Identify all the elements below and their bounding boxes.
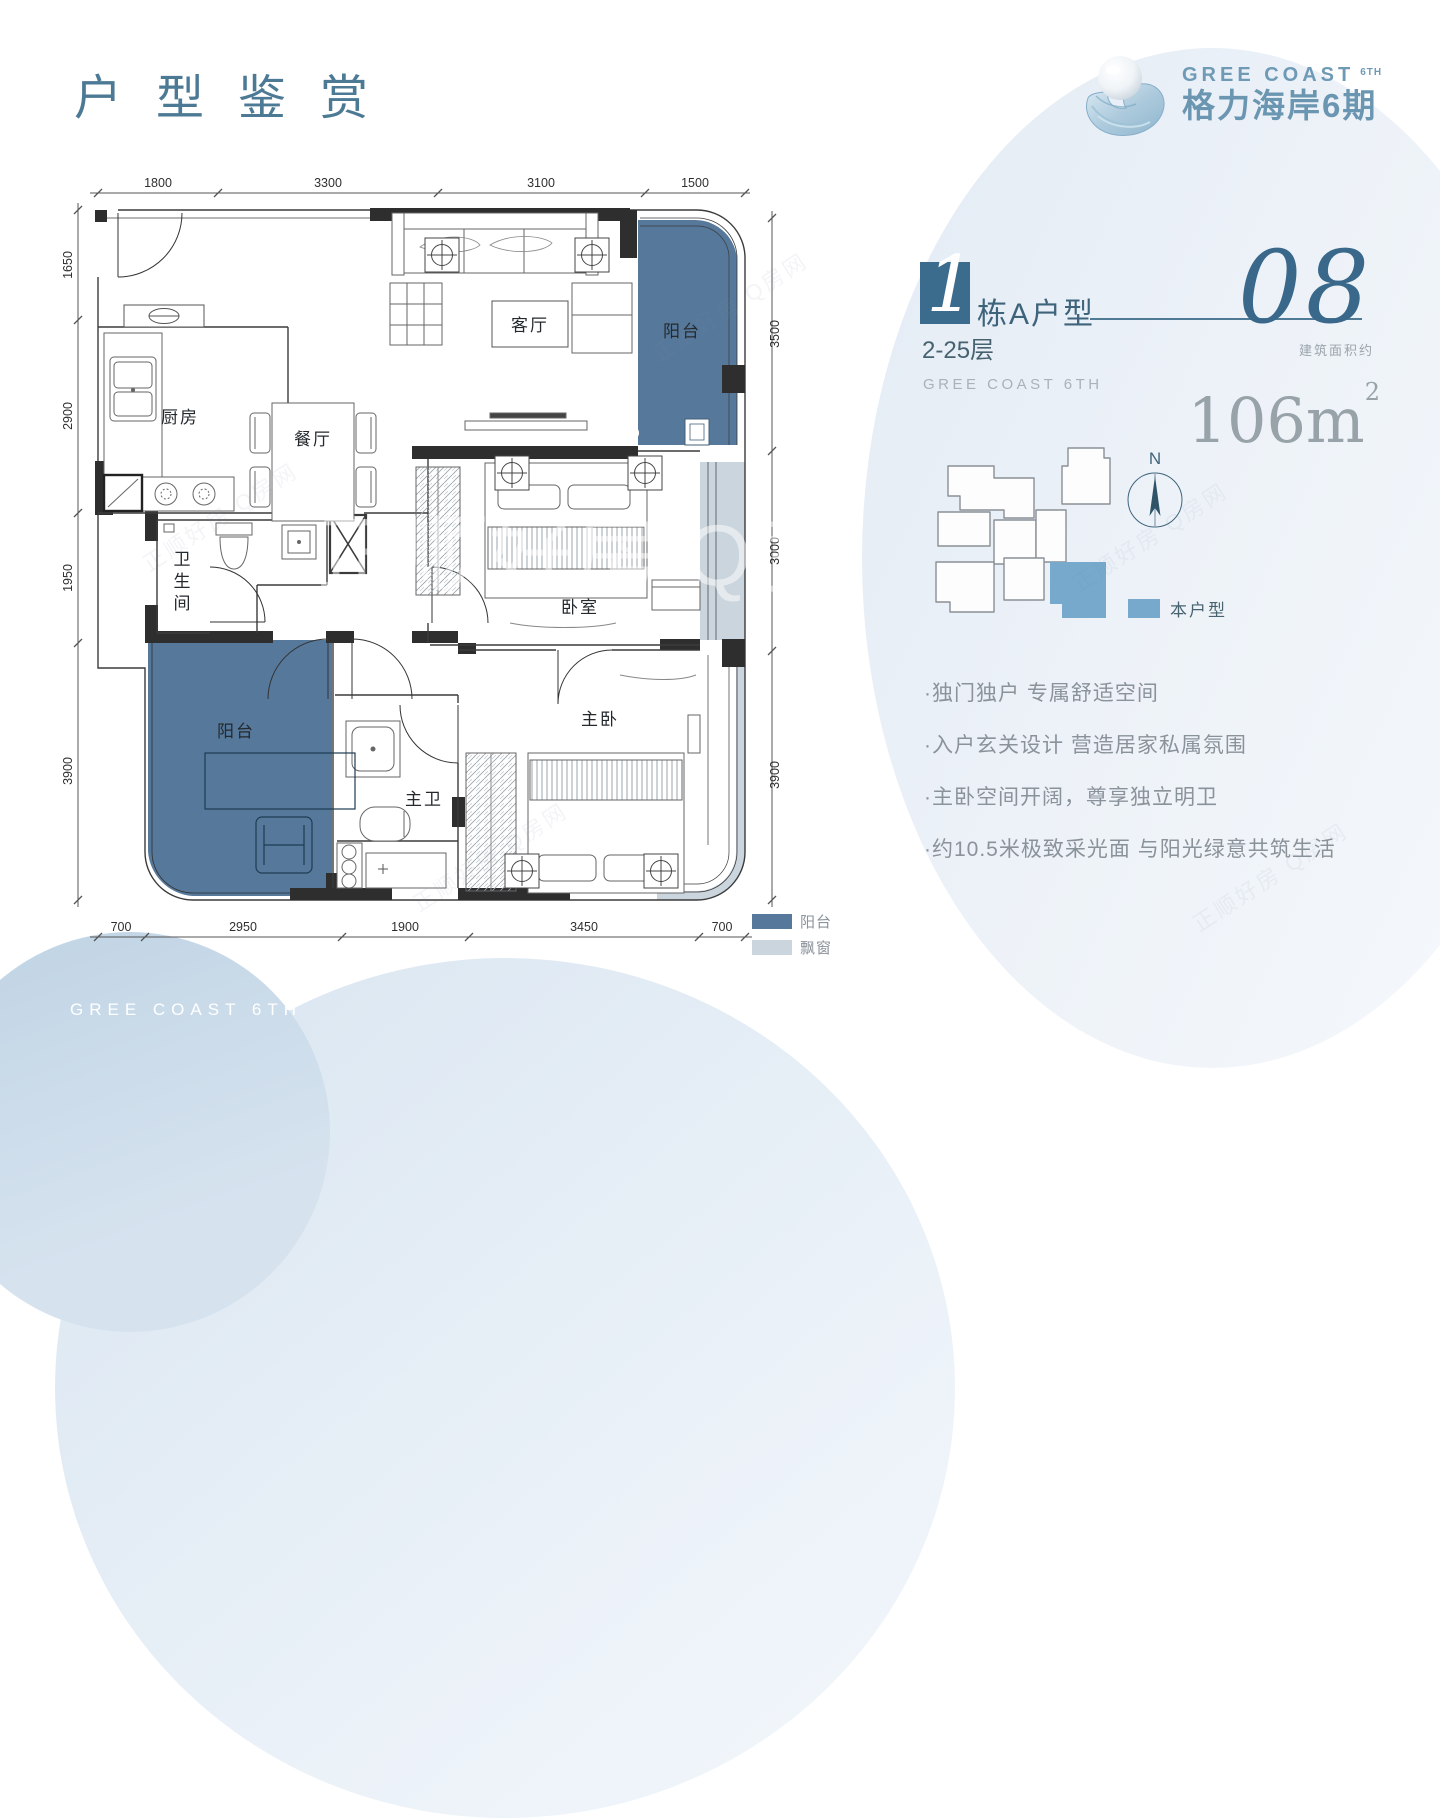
unit-legend: 本户型 <box>1128 596 1227 621</box>
legend-swatch-balcony <box>752 914 792 929</box>
dim-bottom: 700 <box>712 920 733 934</box>
dim-left: 2900 <box>61 402 75 430</box>
room-master-bedroom: 主卧 <box>581 710 619 729</box>
brand-logo: GREE COAST6TH 格力海岸6期 <box>1076 48 1382 140</box>
area-value: 106m <box>1188 384 1365 457</box>
dim-bottom: 1900 <box>391 920 419 934</box>
area-superscript: 2 <box>1365 378 1380 406</box>
dim-right: 3500 <box>768 320 782 348</box>
plan-watermark: 正顺好房 Q房网 <box>317 508 850 604</box>
unit-legend-label: 本户型 <box>1170 596 1227 621</box>
logo-cn: 格力海岸6期 <box>1182 88 1382 124</box>
dim-top: 1500 <box>681 176 709 190</box>
logo-en: GREE COAST <box>1182 64 1354 86</box>
brand-caps: GREE COAST 6TH <box>923 376 1103 393</box>
room-master-bath: 主卫 <box>405 790 443 809</box>
dim-bottom: 2950 <box>229 920 257 934</box>
unit-legend-swatch <box>1128 599 1160 618</box>
footer-brand: GREE COAST 6TH <box>70 1000 302 1020</box>
legend-row-bay: 飘窗 <box>752 937 832 958</box>
dim-bottom: 700 <box>111 920 132 934</box>
page-title: 户型鉴赏 <box>74 58 402 128</box>
block-number-box: 1 <box>920 262 970 324</box>
logo-en-line: GREE COAST6TH <box>1182 64 1382 86</box>
block-number: 1 <box>926 246 976 324</box>
dim-bottom: 3450 <box>570 920 598 934</box>
room-balcony-bottom: 阳台 <box>217 722 255 741</box>
floor-range: 2-25层 <box>922 330 994 365</box>
room-bath-char: 生 <box>174 572 193 591</box>
room-living: 客厅 <box>511 316 549 335</box>
legend-label-bay: 飘窗 <box>800 937 832 958</box>
north-label: N <box>1149 449 1161 468</box>
legend-row-balcony: 阳台 <box>752 911 832 932</box>
dim-top: 1800 <box>144 176 172 190</box>
dim-top: 3300 <box>314 176 342 190</box>
room-bath-char: 间 <box>174 594 193 613</box>
dim-left: 3900 <box>61 757 75 785</box>
unit-number: 08 <box>1238 238 1373 338</box>
room-kitchen: 厨房 <box>161 408 199 427</box>
entry-cabinet <box>124 305 204 327</box>
area-prefix: 建筑面积约 <box>1299 343 1374 358</box>
dim-left: 1650 <box>61 251 75 279</box>
dim-right: 3900 <box>768 761 782 789</box>
shell-pearl-icon <box>1076 48 1172 140</box>
area-row: 建筑面积约106m2 <box>1150 340 1380 452</box>
dim-left: 1950 <box>61 564 75 592</box>
block-type: 栋A户型 <box>977 289 1095 333</box>
legend-swatch-bay <box>752 940 792 955</box>
plan-legend: 阳台 飘窗 <box>752 911 832 963</box>
feature-item: ·入户玄关设计 营造居家私属氛围 <box>924 720 1404 772</box>
dining-furniture <box>250 403 376 521</box>
feature-item: ·独门独户 专属舒适空间 <box>924 668 1404 720</box>
room-dining: 餐厅 <box>294 430 332 449</box>
dim-top: 3100 <box>527 176 555 190</box>
logo-phase: 6TH <box>1360 67 1382 78</box>
legend-label-balcony: 阳台 <box>800 911 832 932</box>
